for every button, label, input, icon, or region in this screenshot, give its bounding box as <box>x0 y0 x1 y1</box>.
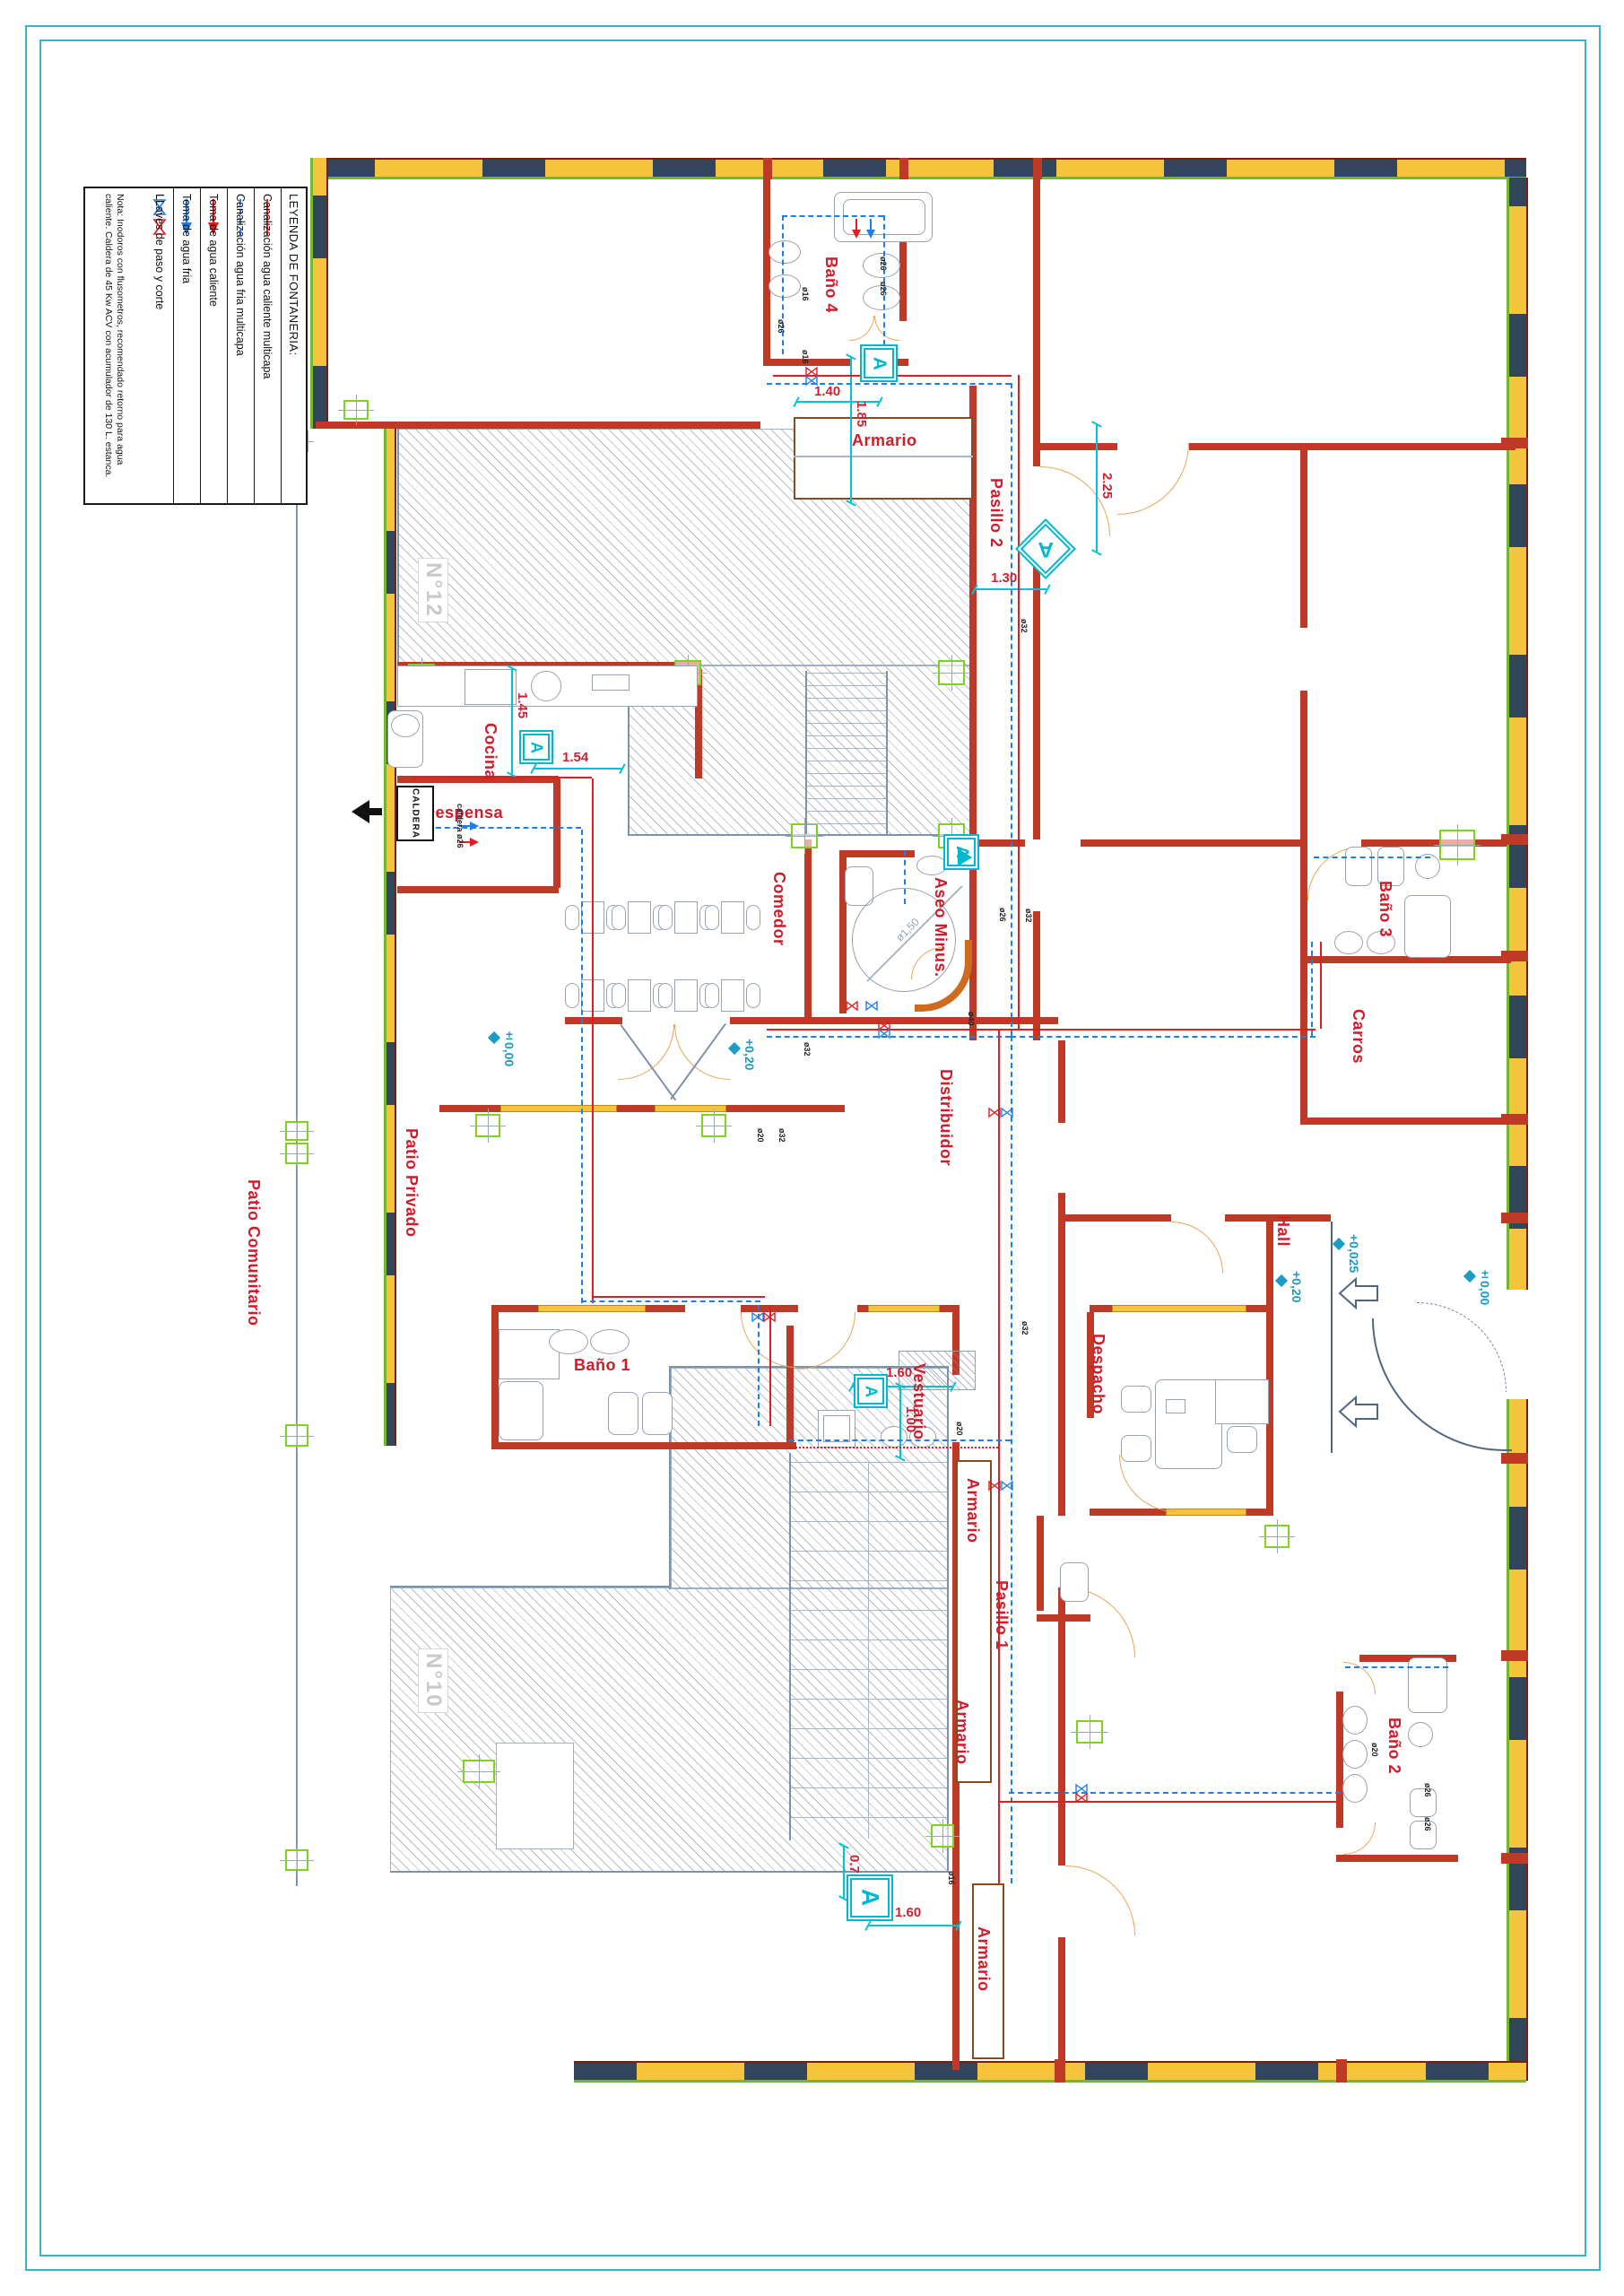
pipe-diameter-label: ø26 <box>1423 1783 1432 1797</box>
legend-item-label: Toma de agua fria <box>181 194 194 283</box>
valve-icon <box>1076 1785 1087 1793</box>
stair-tread <box>807 786 886 787</box>
room-label: Pasillo 2 <box>986 478 1005 548</box>
legend-note-row: Nota: Inodoros con flusometros, recomend… <box>82 188 146 503</box>
tap-arrow-icon <box>866 219 875 239</box>
dimension-text: 1.45 <box>515 692 530 718</box>
pipe-cold <box>1314 857 1430 858</box>
dining-chair <box>612 983 626 1008</box>
dimension-text: 1.60 <box>895 1905 921 1920</box>
stair-tread <box>807 710 886 711</box>
neighbour-ref-label: N°12 <box>418 558 448 622</box>
pipe-hot <box>1018 1029 1316 1031</box>
room-label: Cocina <box>481 723 499 779</box>
pipe-diameter-label: ø20 <box>756 1128 765 1143</box>
valve-icon <box>879 1030 890 1038</box>
fixture <box>531 671 561 701</box>
courtyard-border <box>947 1368 949 1873</box>
stair-tread <box>791 1639 947 1640</box>
dimension-line <box>1096 424 1098 552</box>
valve-icon <box>1076 1794 1087 1802</box>
column-marker <box>938 660 965 685</box>
room-label: Armario <box>852 431 917 450</box>
fixture <box>1408 1722 1433 1747</box>
room-label: Baño 3 <box>1376 881 1394 937</box>
wall <box>1033 538 1040 839</box>
ramp-arrow <box>1338 1396 1379 1428</box>
column-marker <box>791 823 818 848</box>
stair-tread <box>807 823 886 824</box>
stair-tread <box>791 1521 947 1522</box>
fixture <box>1404 895 1451 958</box>
hatched-area <box>390 1587 949 1873</box>
dining-table <box>674 979 698 1012</box>
cabinet-line <box>794 456 973 457</box>
boiler-box: CALDERA <box>396 786 434 841</box>
dining-chair <box>658 983 673 1008</box>
fixture <box>916 856 947 875</box>
pipe-cold <box>1311 942 1313 1036</box>
column-marker <box>475 1114 500 1137</box>
fixture <box>1342 1740 1368 1769</box>
dining-chair <box>746 983 760 1008</box>
interior-window <box>500 1105 617 1112</box>
elevation-text: +0,20 <box>743 1039 757 1070</box>
stair-tread <box>791 1580 947 1581</box>
door-swing <box>874 316 899 341</box>
legend-title-row: LEYENDA DE FONTANERIA: <box>281 188 306 503</box>
door-swing <box>1065 1865 1135 1935</box>
fixture <box>1060 1562 1089 1602</box>
ramp-arrow <box>1338 1277 1379 1309</box>
legend-item: Canalización agua fria multicapa <box>227 188 254 503</box>
interior-window <box>868 1305 940 1312</box>
pipe-hot <box>1320 942 1322 1029</box>
pipe-diameter-label: ø20 <box>955 1422 964 1436</box>
door-swing <box>849 316 874 341</box>
fixture <box>1342 1706 1368 1735</box>
column-marker <box>931 1824 954 1848</box>
wall <box>565 1017 622 1024</box>
elevation-diamond-icon <box>728 1042 741 1055</box>
wall <box>1037 1516 1044 1611</box>
section-cut-arrow-icon <box>958 848 972 866</box>
wall <box>804 839 812 1019</box>
stair-tread <box>807 735 886 736</box>
room-label: Carros <box>1349 1009 1368 1064</box>
fixture <box>823 1415 850 1442</box>
dimension-text: 1.54 <box>562 750 588 765</box>
pipe-cold <box>904 850 906 904</box>
room-label: Armario <box>963 1478 982 1544</box>
door-swing <box>1171 1222 1223 1274</box>
wall <box>1081 839 1302 847</box>
room-label: Patio Comunitario <box>244 1179 263 1326</box>
fixture <box>1334 931 1363 954</box>
facade-junction <box>1336 2059 1347 2083</box>
dimension-line <box>534 768 621 770</box>
valve-icon <box>989 1109 1000 1117</box>
fixture <box>590 1329 630 1354</box>
stair-rail <box>868 1462 869 1839</box>
column-marker <box>463 1760 495 1783</box>
legend-item-label: Canalización agua fria multicapa <box>235 194 248 356</box>
boiler-note: caldera ø26 <box>456 804 465 848</box>
valve-icon <box>1002 1109 1012 1117</box>
valve-icon <box>866 1002 877 1010</box>
legend-item: Canalización agua caliente multicapa <box>254 188 281 503</box>
fixture <box>1121 1386 1151 1413</box>
section-marker: A <box>864 348 894 378</box>
stair-tread <box>807 698 886 699</box>
valve-icon <box>806 368 817 376</box>
dining-table <box>628 901 651 934</box>
stair-tread <box>807 723 886 724</box>
courtyard-border <box>390 1586 671 1587</box>
pipe-diameter-label: ø16 <box>801 350 810 364</box>
dining-chair <box>612 905 626 930</box>
stair-tread <box>791 1492 947 1492</box>
hatch-notch <box>496 1743 574 1849</box>
facade-junction <box>1501 1453 1528 1464</box>
facade-window-band <box>384 429 396 1446</box>
column-marker <box>285 1849 308 1871</box>
pipe-diameter-label: ø16 <box>947 1871 956 1885</box>
stair-side <box>805 671 807 834</box>
legend-item: Toma de agua fria <box>173 188 200 503</box>
pipe-diameter-label: ø32 <box>1024 909 1033 923</box>
stair-side <box>789 1453 791 1840</box>
valve-icon <box>989 1482 1000 1490</box>
legend-item-label: Toma de agua caliente <box>208 194 221 307</box>
fixture <box>642 1392 673 1435</box>
door-swing <box>1117 443 1189 515</box>
wall <box>969 839 1025 847</box>
valve-icon <box>752 1313 763 1321</box>
wall <box>1058 1214 1171 1222</box>
pipe-hot <box>413 777 592 778</box>
room-label: Patio Privado <box>402 1128 421 1238</box>
wall <box>491 1442 796 1449</box>
room-label: Armario <box>952 1700 971 1765</box>
room-label: Baño 4 <box>821 257 840 313</box>
legend-items: Canalización agua caliente multicapaCana… <box>146 188 281 503</box>
wardrobe-cabinet <box>794 417 973 500</box>
pipe-diameter-label: ø16 <box>801 287 810 301</box>
stair-tread <box>807 761 886 761</box>
dining-table <box>628 979 651 1012</box>
dimension-text: 1.40 <box>814 384 840 399</box>
pipe-hot <box>789 1447 998 1448</box>
legend-item-label: Canalización agua caliente multicapa <box>262 194 274 378</box>
room-label: Comedor <box>769 872 788 946</box>
pipe-diameter-label: ø20 <box>1370 1743 1379 1757</box>
elevation-diamond-icon <box>488 1031 500 1044</box>
pipe-diameter-label: ø26 <box>879 257 888 271</box>
fixture <box>1345 847 1372 886</box>
wall <box>1058 1193 1065 1516</box>
elevation-diamond-icon <box>1275 1274 1288 1287</box>
dining-chair <box>658 905 673 930</box>
facade-window-band <box>312 158 1526 179</box>
room-label: Hall <box>1273 1215 1292 1247</box>
legend-item: LLaves de paso y corte <box>146 188 173 503</box>
facade-junction <box>1033 158 1042 179</box>
fixture <box>1121 1435 1151 1462</box>
pipe-diameter-label: ø32 <box>777 1128 786 1143</box>
facade-junction <box>899 158 908 179</box>
dimension-text: 1.60 <box>886 1365 912 1380</box>
dimension-line <box>843 1846 845 1898</box>
flue-arrow-icon <box>352 800 382 823</box>
facade-junction <box>1501 1650 1528 1661</box>
wall <box>316 422 760 429</box>
section-marker: A <box>523 734 550 761</box>
dining-chair <box>705 905 719 930</box>
stair-side <box>886 671 888 834</box>
legend-note: Nota: Inodoros con flusometros, recomend… <box>102 194 125 498</box>
pipe-cold <box>789 1439 1011 1441</box>
pipe-hot <box>769 1305 771 1426</box>
pipe-cold <box>782 215 883 217</box>
fixture <box>608 1392 638 1435</box>
pipe-diameter-label: ø32 <box>803 1042 812 1057</box>
wall <box>491 1312 499 1448</box>
column-marker <box>285 1143 308 1164</box>
dimension-text: 1.30 <box>991 570 1017 586</box>
room-label: Aseo Minus. <box>931 877 950 978</box>
stair-tread <box>807 811 886 812</box>
fixture <box>1227 1426 1257 1453</box>
pipe-cold <box>1011 1036 1316 1038</box>
dimension-text: 2.25 <box>1099 473 1115 499</box>
stair-tread <box>791 1551 947 1552</box>
facade-window-band <box>310 158 328 429</box>
fixture <box>1215 1379 1269 1424</box>
stair-tread <box>791 1699 947 1700</box>
pipe-cold <box>1345 1666 1448 1668</box>
elevation-text: +0,025 <box>1347 1234 1361 1273</box>
stair-tread <box>791 1787 947 1788</box>
fixture <box>499 1381 543 1440</box>
stair-tread <box>807 773 886 774</box>
pipe-hot <box>592 778 594 1303</box>
dining-chair <box>565 905 579 930</box>
facade-junction <box>1501 1853 1528 1864</box>
legend-title: LEYENDA DE FONTANERIA: <box>287 194 300 356</box>
pipe-diameter-label: ø32 <box>1020 1321 1029 1335</box>
interior-window <box>538 1305 646 1312</box>
pipe-cold <box>758 1305 760 1426</box>
section-marker: A <box>857 1378 884 1405</box>
wall <box>1300 691 1307 1121</box>
column-marker <box>343 400 369 420</box>
pipe-cold <box>782 215 784 354</box>
stair-tread <box>807 798 886 799</box>
elevation-text: ±0,00 <box>1478 1266 1492 1305</box>
courtyard-border <box>397 429 399 665</box>
facade-window-band <box>1507 178 1528 2081</box>
stair-tread <box>791 1462 947 1463</box>
stair-tread <box>791 1817 947 1818</box>
wall <box>1033 178 1040 466</box>
stair-tread <box>807 748 886 749</box>
pipe-hot <box>998 1801 1336 1803</box>
dimension-line <box>850 357 852 502</box>
valve-icon <box>764 1313 775 1321</box>
facade-window-band <box>574 2061 1526 2083</box>
dining-chair <box>565 983 579 1008</box>
dimension-line <box>868 1925 958 1926</box>
dimension-line <box>511 668 513 774</box>
tap-arrow-icon <box>852 219 861 239</box>
room-label: Despacho <box>1089 1334 1107 1414</box>
elevation-text: +0,20 <box>1290 1271 1304 1302</box>
wall <box>1336 1692 1343 1828</box>
pipe-diameter-label: ø26 <box>777 319 786 334</box>
wall <box>1058 1040 1065 1123</box>
interior-window <box>655 1105 726 1112</box>
fixture <box>769 240 801 264</box>
pipe-cold <box>1011 1036 1012 1883</box>
dining-table <box>721 979 744 1012</box>
pipe-hot <box>767 1029 1018 1031</box>
wall <box>1058 1587 1065 1865</box>
pipe-hot <box>998 1029 1000 1883</box>
pipe-hot <box>1018 375 1020 1029</box>
valve-icon <box>879 1022 890 1030</box>
pipe-cold <box>1009 1792 1341 1794</box>
room-label: Pasillo 1 <box>992 1580 1011 1650</box>
dining-table <box>721 901 744 934</box>
room-label: Baño 2 <box>1385 1718 1403 1774</box>
wall <box>553 778 560 888</box>
wall <box>397 886 559 893</box>
stair-tread <box>807 685 886 686</box>
section-marker: A <box>850 1878 890 1918</box>
stair-tread <box>791 1758 947 1759</box>
wall <box>730 1017 1058 1024</box>
fixture <box>1342 1774 1368 1803</box>
pipe-cold <box>1011 383 1012 1036</box>
wall <box>1058 1937 1065 2063</box>
pipe-diameter-label: ø26 <box>879 282 888 296</box>
dimension-text: 0.75 <box>847 1855 862 1881</box>
room-label: Armario <box>974 1926 993 1992</box>
wall <box>1037 443 1117 450</box>
legend-item: Toma de agua caliente <box>200 188 227 503</box>
floor-plan-sheet: LEYENDA DE FONTANERIA: Canalización agua… <box>0 0 1624 2296</box>
dining-chair <box>705 983 719 1008</box>
dining-chair <box>746 905 760 930</box>
pipe-diameter-label: ø26 <box>998 908 1007 922</box>
dimension-text: 1.85 <box>854 401 869 427</box>
fixture <box>1166 1399 1185 1413</box>
interior-window <box>1112 1305 1246 1312</box>
column-marker <box>1439 830 1475 860</box>
column-marker <box>1264 1525 1290 1548</box>
stair-tread <box>807 673 886 674</box>
neighbour-ref-label: N°10 <box>418 1648 448 1713</box>
courtyard-border <box>390 1871 949 1873</box>
column-marker <box>1076 1720 1103 1744</box>
pipe-cold <box>581 1300 760 1302</box>
stair-tread <box>791 1610 947 1611</box>
room-label: Baño 1 <box>574 1356 630 1375</box>
fixture <box>592 674 630 691</box>
elevation-text: ±0,00 <box>502 1028 517 1066</box>
pipe-hot <box>592 1296 765 1298</box>
interior-window <box>1166 1509 1246 1516</box>
fixture <box>769 274 801 298</box>
fixture <box>465 669 517 705</box>
pipe-diameter-label: ø26 <box>1423 1817 1432 1831</box>
valve-icon <box>847 1002 857 1010</box>
door-swing <box>674 1024 730 1080</box>
stair-tread <box>791 1728 947 1729</box>
pipe-cold <box>581 830 583 1303</box>
valve-icon <box>1002 1482 1012 1490</box>
facade-junction <box>763 158 772 179</box>
door-swing <box>798 1312 855 1370</box>
stair-tread <box>791 1669 947 1670</box>
wall <box>1189 443 1515 450</box>
plumbing-legend: LEYENDA DE FONTANERIA: Canalización agua… <box>83 187 308 505</box>
wall <box>1336 1855 1458 1862</box>
room-label: Distribuidor <box>936 1069 955 1166</box>
wall <box>1300 1118 1512 1125</box>
legend-item-label: LLaves de paso y corte <box>153 194 166 309</box>
column-marker <box>285 1424 308 1447</box>
fixture <box>1155 1379 1222 1469</box>
wall <box>1266 1222 1273 1516</box>
hatched-area <box>671 1368 949 1589</box>
column-marker <box>701 1114 726 1137</box>
door-swing <box>1343 1822 1376 1855</box>
pipe-diameter-label: ø40 <box>967 1012 976 1026</box>
wall <box>1300 450 1307 628</box>
dining-table <box>674 901 698 934</box>
pipe-cold <box>767 383 1011 385</box>
wall <box>763 179 770 366</box>
fixture <box>549 1329 588 1354</box>
dimension-text: 1.00 <box>903 1406 918 1432</box>
pipe-diameter-label: ø32 <box>1020 619 1029 633</box>
fixture <box>391 714 420 737</box>
